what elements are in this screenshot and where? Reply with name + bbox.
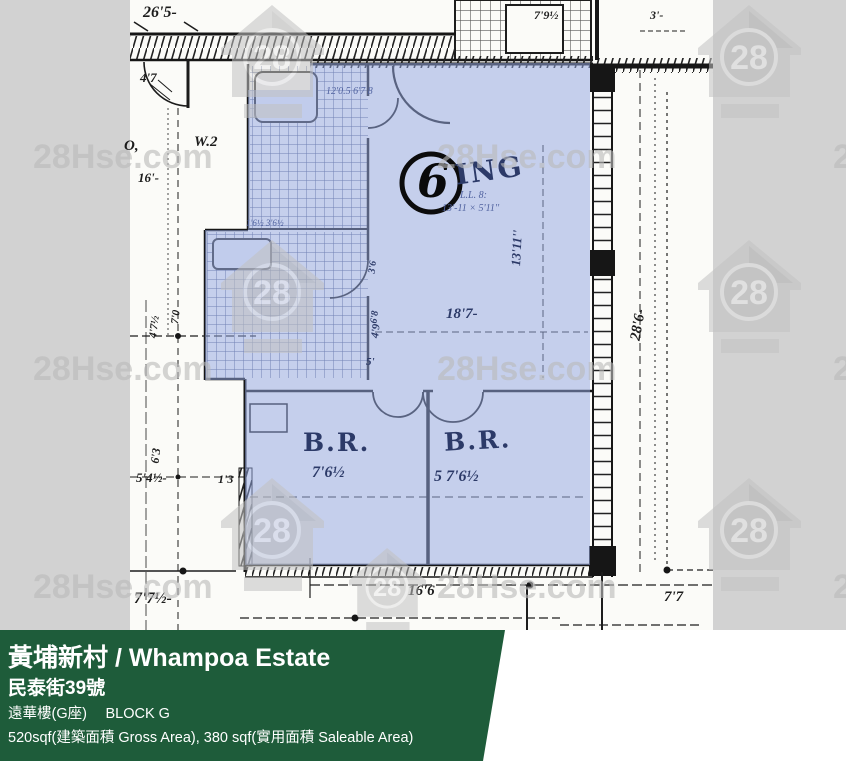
watermark-house-icon: 28 <box>697 478 802 593</box>
estate-info-panel: 黃埔新村 / Whampoa Estate 民泰街39號 遠華樓(G座) BLO… <box>0 630 846 761</box>
dim-13-11-rot: 13'11'' <box>508 230 526 267</box>
svg-text:28: 28 <box>730 274 768 312</box>
scribble-13-11: 13'-11 × 5'11'' <box>442 203 499 214</box>
svg-text:28: 28 <box>253 512 291 550</box>
scribble-ll: L.L. 8: <box>460 190 487 201</box>
svg-text:28: 28 <box>253 39 291 77</box>
watermark-text: 28Hse.com <box>437 138 617 177</box>
watermark-text: 28Hse.com <box>33 138 213 177</box>
watermark-house-icon: 28 <box>697 240 802 355</box>
svg-text:28: 28 <box>730 39 768 77</box>
watermark-house-icon: 28 <box>348 548 427 634</box>
estate-address: 民泰街39號 <box>8 673 105 700</box>
dim-5: 5' <box>366 356 375 368</box>
svg-text:28: 28 <box>730 512 768 550</box>
svg-text:28: 28 <box>253 274 291 312</box>
dim-6-8-rot: 6'8 <box>369 310 381 324</box>
watermark-house-icon: 28 <box>220 240 325 355</box>
dim-bottom-right: 7'7 <box>664 589 683 606</box>
watermark-text: 28Hse.com <box>437 568 617 607</box>
watermark-text: 28Hse.com <box>833 350 846 389</box>
kitchen-note: 1'6½ 3'6½ <box>246 218 284 228</box>
dim-4-7: 4'7 <box>140 70 157 86</box>
dim-7-0-rot: 7'0 <box>169 309 183 324</box>
room-bedroom2-label: B.R. <box>443 424 512 456</box>
dim-3-6-rot: 3'6 <box>367 260 379 274</box>
dim-18-7: 18'7- <box>446 306 478 323</box>
estate-area: 520sqf(建築面積 Gross Area), 380 sqf(實用面積 Sa… <box>8 726 413 747</box>
room-bedroom1-label: B.R. <box>303 428 370 457</box>
dim-top-width: 26'5- <box>143 4 177 22</box>
watermark-text: 28Hse.com <box>437 350 617 389</box>
listing-floorplan-image: 6 26'5- 7'9½ 3'- 4'7 W.2 O, 16'- 4'7½ 7'… <box>0 0 846 761</box>
dim-3: 3'- <box>650 8 663 23</box>
watermark-house-icon: 28 <box>697 5 802 120</box>
dim-4-9-rot: 4'9 <box>369 323 383 338</box>
watermark-text: 28Hse.com <box>833 568 846 607</box>
dim-6-3-rot: 6'3 <box>148 447 165 464</box>
watermark-text: 28Hse.com <box>33 350 213 389</box>
watermark-house-icon: 28 <box>220 5 325 120</box>
watermark-text: 28Hse.com <box>33 568 213 607</box>
estate-title: 黃埔新村 / Whampoa Estate <box>8 638 330 674</box>
dim-7-9: 7'9½ <box>534 8 558 23</box>
dim-5-4: 5'4½- <box>136 470 167 486</box>
svg-text:28: 28 <box>373 574 401 602</box>
watermark-text: 28Hse.com <box>833 138 846 177</box>
listing-info-bar: 黃埔新村 / Whampoa Estate 民泰街39號 遠華樓(G座) BLO… <box>0 630 846 761</box>
estate-block: 遠華樓(G座) BLOCK G <box>8 702 170 723</box>
dim-bedroom2: 5 7'6½ <box>434 468 478 486</box>
scribble-top: 12'0.5 6'7 8 <box>326 86 373 97</box>
watermark-house-icon: 28 <box>220 478 325 593</box>
